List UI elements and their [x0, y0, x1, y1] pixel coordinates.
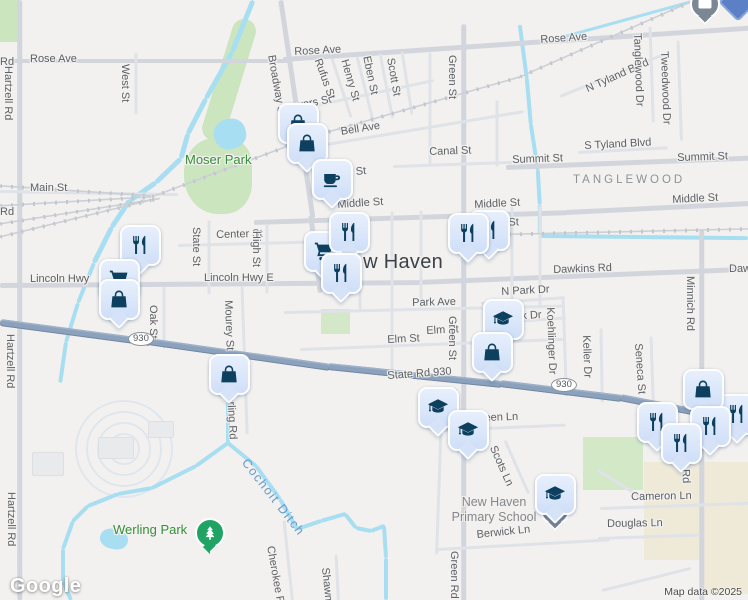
poi-marker-shopping[interactable] [683, 369, 724, 410]
road [135, 52, 138, 114]
stream [540, 234, 748, 240]
poi-marker-restaurant[interactable] [329, 212, 370, 253]
road [391, 211, 394, 373]
landuse-area [644, 462, 748, 560]
poi-marker-school[interactable] [535, 474, 576, 515]
street-label: Shawn [319, 567, 334, 600]
restaurant-icon [330, 262, 352, 284]
poi-marker-school[interactable] [448, 410, 489, 451]
road [649, 26, 655, 122]
graduation-cap-icon [457, 419, 479, 441]
street-label: Main St [30, 182, 67, 194]
building [98, 437, 134, 459]
street-label: Park Ave [412, 296, 456, 309]
poi-marker-shopping[interactable] [209, 354, 250, 395]
post-office-pin[interactable] [690, 0, 720, 19]
street-label: Douglas Ln [607, 517, 663, 530]
stream [536, 170, 542, 205]
graduation-cap-icon [492, 308, 514, 330]
stream [384, 558, 388, 600]
stream [64, 302, 80, 342]
road [300, 337, 564, 350]
street-label: Hartzell Rd [2, 66, 14, 120]
park-area [184, 138, 252, 214]
envelope-icon [699, 0, 712, 9]
road [18, 0, 23, 600]
street-label: High St [250, 231, 262, 267]
road [254, 210, 568, 224]
google-logo[interactable]: Google [10, 575, 81, 598]
street-label: Tanglewood Dr [631, 33, 646, 107]
graduation-cap-icon [544, 483, 566, 505]
stream [71, 505, 89, 523]
stream [58, 342, 68, 383]
street-label: Cherokee Rd [264, 545, 287, 600]
stream [154, 156, 183, 184]
street-label: Tweedwood Dr [658, 51, 673, 125]
street-label: Berwick Ln [476, 523, 531, 541]
street-label: Rose Ave [540, 31, 588, 46]
map-attribution: Map data ©2025 [664, 586, 742, 598]
poi-diamond-pin[interactable] [718, 0, 748, 22]
street-label: N Park Dr [501, 283, 550, 298]
poi-marker-shopping[interactable] [472, 332, 513, 373]
street-label: Lincoln Hwy E [204, 272, 274, 284]
graduation-cap-icon [427, 396, 449, 418]
shopping-bag-icon [108, 288, 130, 310]
street-label: Elm St [387, 332, 420, 346]
road [435, 428, 442, 554]
street-label: Green St [446, 316, 458, 360]
restaurant-icon [338, 221, 360, 243]
shopping-bag-icon [692, 378, 714, 400]
street-label: Canal St [429, 145, 472, 158]
street-label: Summit St [512, 152, 563, 166]
road [335, 554, 341, 600]
street-label: Keller Dr [580, 335, 593, 378]
park-label: Werling Park [113, 522, 187, 537]
map-canvas[interactable]: New Haven Google Map data ©2025 Rose Ave… [0, 0, 748, 600]
street-label: Koehlinger Dr [544, 307, 558, 375]
street-label: Minnich Rd [684, 276, 696, 331]
street-label: Rose Ave [294, 44, 341, 58]
street-label: Seneca St [632, 343, 648, 394]
street-label: Cameron Ln [631, 490, 692, 503]
street-label: Daw [729, 263, 748, 275]
poi-marker-restaurant[interactable] [661, 423, 702, 464]
park-label: Moser Park [185, 152, 251, 167]
street-label: Lincoln Hwy [30, 273, 89, 285]
shopping-bag-icon [218, 363, 240, 385]
restaurant-icon [457, 222, 479, 244]
road [650, 336, 655, 402]
street-label: Middle St [474, 197, 520, 211]
street-label: Middle St [672, 192, 718, 206]
street-label: Rose Ave [30, 53, 77, 65]
street-label: Green Rd [448, 551, 460, 599]
road [600, 328, 604, 402]
poi-marker-restaurant[interactable] [321, 253, 362, 294]
shopping-bag-icon [296, 132, 318, 154]
poi-marker-shopping[interactable] [287, 123, 328, 164]
road [163, 286, 166, 348]
street-label: Hartzell Rd [5, 492, 17, 546]
stream [525, 78, 533, 125]
coffee-cup-icon [321, 168, 343, 190]
stream [320, 512, 346, 523]
park-tree-pin[interactable] [195, 518, 225, 548]
stream [382, 526, 388, 558]
building [32, 452, 64, 476]
street-label: Hartzell Rd [4, 334, 16, 388]
poi-marker-shopping[interactable] [99, 279, 140, 320]
road [496, 100, 499, 166]
stream [194, 441, 229, 468]
street-label: Mourey St [222, 300, 236, 351]
water-label: Cochoit Ditch [239, 456, 308, 539]
road [677, 40, 683, 140]
restaurant-icon [129, 234, 151, 256]
street-label: Summit St [677, 150, 728, 164]
tree-icon [202, 525, 219, 542]
route-930-shield: 930 [128, 332, 154, 346]
stream [61, 520, 75, 550]
stream [87, 492, 119, 508]
restaurant-icon [699, 415, 721, 437]
poi-marker-cafe[interactable] [312, 159, 353, 200]
street-label: West St [119, 64, 131, 102]
street-label: Dawkins Rd [553, 262, 612, 276]
street-label: State St [190, 227, 202, 266]
route-930-shield: 930 [551, 378, 577, 392]
shopping-bag-icon [481, 341, 503, 363]
building [148, 421, 174, 438]
street-label: Green St [446, 55, 458, 99]
road [566, 201, 748, 214]
restaurant-icon [670, 432, 692, 454]
neighborhood-label: TANGLEWOOD [573, 174, 685, 186]
street-label: Rd [0, 206, 14, 218]
poi-marker-restaurant[interactable] [448, 213, 489, 254]
